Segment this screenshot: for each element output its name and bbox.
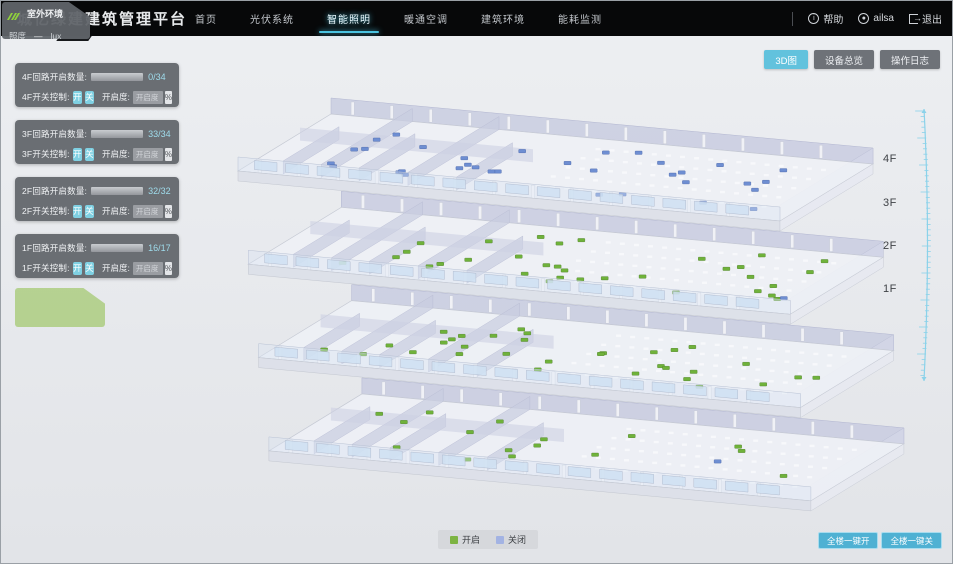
floor-panel-4f: 4F回路开启数量: 0/34 4F开关控制: 开 关 开启度: % [15, 63, 179, 107]
floor-panel-1f: 1F回路开启数量: 16/17 1F开关控制: 开 关 开启度: % [15, 234, 179, 278]
help-label: 帮助 [823, 11, 843, 26]
circuit-count-value: 16/17 [148, 243, 171, 253]
legend-on-label: 开启 [462, 533, 480, 546]
username-label: ailsa [873, 13, 894, 24]
building-3d-view[interactable] [216, 91, 906, 531]
dim-level-label: 开启度: [102, 205, 130, 217]
dim-percent-button[interactable]: % [165, 205, 172, 218]
illuminance-value: — [34, 31, 43, 41]
dim-level-label: 开启度: [102, 262, 130, 274]
illuminance-label: 照度 [9, 30, 26, 42]
outdoor-env-title: 室外环境 [27, 9, 63, 19]
dim-percent-button[interactable]: % [165, 262, 172, 275]
floor-label-3f[interactable]: 3F [883, 197, 897, 209]
header-divider [792, 12, 793, 26]
legend-off-swatch [496, 536, 504, 544]
circuit-count-value: 32/32 [148, 186, 171, 196]
operation-log-button[interactable]: 操作日志 [880, 50, 940, 69]
user-icon: ● [858, 13, 869, 24]
circuit-count-label: 2F回路开启数量: [22, 185, 87, 197]
dim-percent-button[interactable]: % [165, 148, 172, 161]
dim-level-label: 开启度: [102, 148, 130, 160]
floor-off-button[interactable]: 关 [85, 91, 94, 104]
view-switcher: 3D图 设备总览 操作日志 [764, 50, 940, 69]
switch-control-label: 2F开关控制: [22, 205, 70, 217]
nav-energy-monitor[interactable]: 能耗监测 [556, 0, 604, 37]
switch-control-label: 3F开关控制: [22, 148, 70, 160]
floor-label-4f[interactable]: 4F [883, 153, 897, 165]
floor-on-button[interactable]: 开 [73, 262, 82, 275]
user-menu[interactable]: ● ailsa [858, 13, 894, 24]
dim-percent-button[interactable]: % [165, 91, 172, 104]
all-floors-on-button[interactable]: 全楼一键开 [818, 532, 879, 549]
floor-label-2f[interactable]: 2F [883, 240, 897, 252]
device-overview-button[interactable]: 设备总览 [814, 50, 874, 69]
circuit-progress-bar [91, 187, 143, 195]
switch-control-label: 4F开关控制: [22, 91, 70, 103]
floor-off-button[interactable]: 关 [85, 148, 94, 161]
logout-label: 退出 [922, 11, 942, 26]
legend-on-swatch [450, 536, 458, 544]
nav-hvac[interactable]: 暖通空调 [402, 0, 450, 37]
circuit-count-value: 33/34 [148, 129, 171, 139]
info-icon: i [808, 13, 819, 24]
main-nav: 首页 光伏系统 智能照明 暖通空调 建筑环境 能耗监测 [193, 1, 604, 36]
all-floors-off-button[interactable]: 全楼一键关 [881, 532, 942, 549]
header-right: i 帮助 ● ailsa 退出 [792, 1, 942, 36]
top-bar: 城亿绿建建筑管理平台 首页 光伏系统 智能照明 暖通空调 建筑环境 能耗监测 i… [1, 1, 952, 36]
floor-on-button[interactable]: 开 [73, 205, 82, 218]
nav-home[interactable]: 首页 [193, 0, 219, 37]
circuit-count-label: 4F回路开启数量: [22, 71, 87, 83]
dim-level-input[interactable] [133, 91, 163, 104]
circuit-count-label: 3F回路开启数量: [22, 128, 87, 140]
nav-building-env[interactable]: 建筑环境 [479, 0, 527, 37]
floor-panel-2f: 2F回路开启数量: 32/32 2F开关控制: 开 关 开启度: % [15, 177, 179, 221]
nav-smart-lighting[interactable]: 智能照明 [325, 0, 373, 37]
zoom-ruler-slider[interactable] [904, 101, 944, 396]
floor-off-button[interactable]: 关 [85, 262, 94, 275]
nav-pv-system[interactable]: 光伏系统 [248, 0, 296, 37]
dim-level-input[interactable] [133, 205, 163, 218]
floor-on-button[interactable]: 开 [73, 148, 82, 161]
outdoor-env-panel-accent [15, 288, 105, 327]
circuit-progress-bar [91, 244, 143, 252]
bulk-actions: 全楼一键开 全楼一键关 [818, 532, 942, 549]
circuit-count-label: 1F回路开启数量: [22, 242, 87, 254]
floor-label-1f[interactable]: 1F [883, 283, 897, 295]
floor-panel-3f: 3F回路开启数量: 33/34 3F开关控制: 开 关 开启度: % [15, 120, 179, 164]
floor-off-button[interactable]: 关 [85, 205, 94, 218]
dim-level-input[interactable] [133, 148, 163, 161]
view-3d-button[interactable]: 3D图 [764, 50, 808, 69]
switch-control-label: 1F开关控制: [22, 262, 70, 274]
legend-off-label: 关闭 [508, 533, 526, 546]
help-button[interactable]: i 帮助 [808, 11, 843, 26]
dim-level-input[interactable] [133, 262, 163, 275]
lights-legend: 开启 关闭 [438, 530, 538, 549]
circuit-progress-bar [91, 73, 143, 81]
circuit-progress-bar [91, 130, 143, 138]
circuit-count-value: 0/34 [148, 72, 166, 82]
app-root: 城亿绿建建筑管理平台 首页 光伏系统 智能照明 暖通空调 建筑环境 能耗监测 i… [0, 0, 953, 564]
floor-on-button[interactable]: 开 [73, 91, 82, 104]
logout-icon [909, 14, 918, 24]
logout-button[interactable]: 退出 [909, 11, 942, 26]
dim-level-label: 开启度: [102, 91, 130, 103]
leaf-icon [9, 7, 20, 24]
